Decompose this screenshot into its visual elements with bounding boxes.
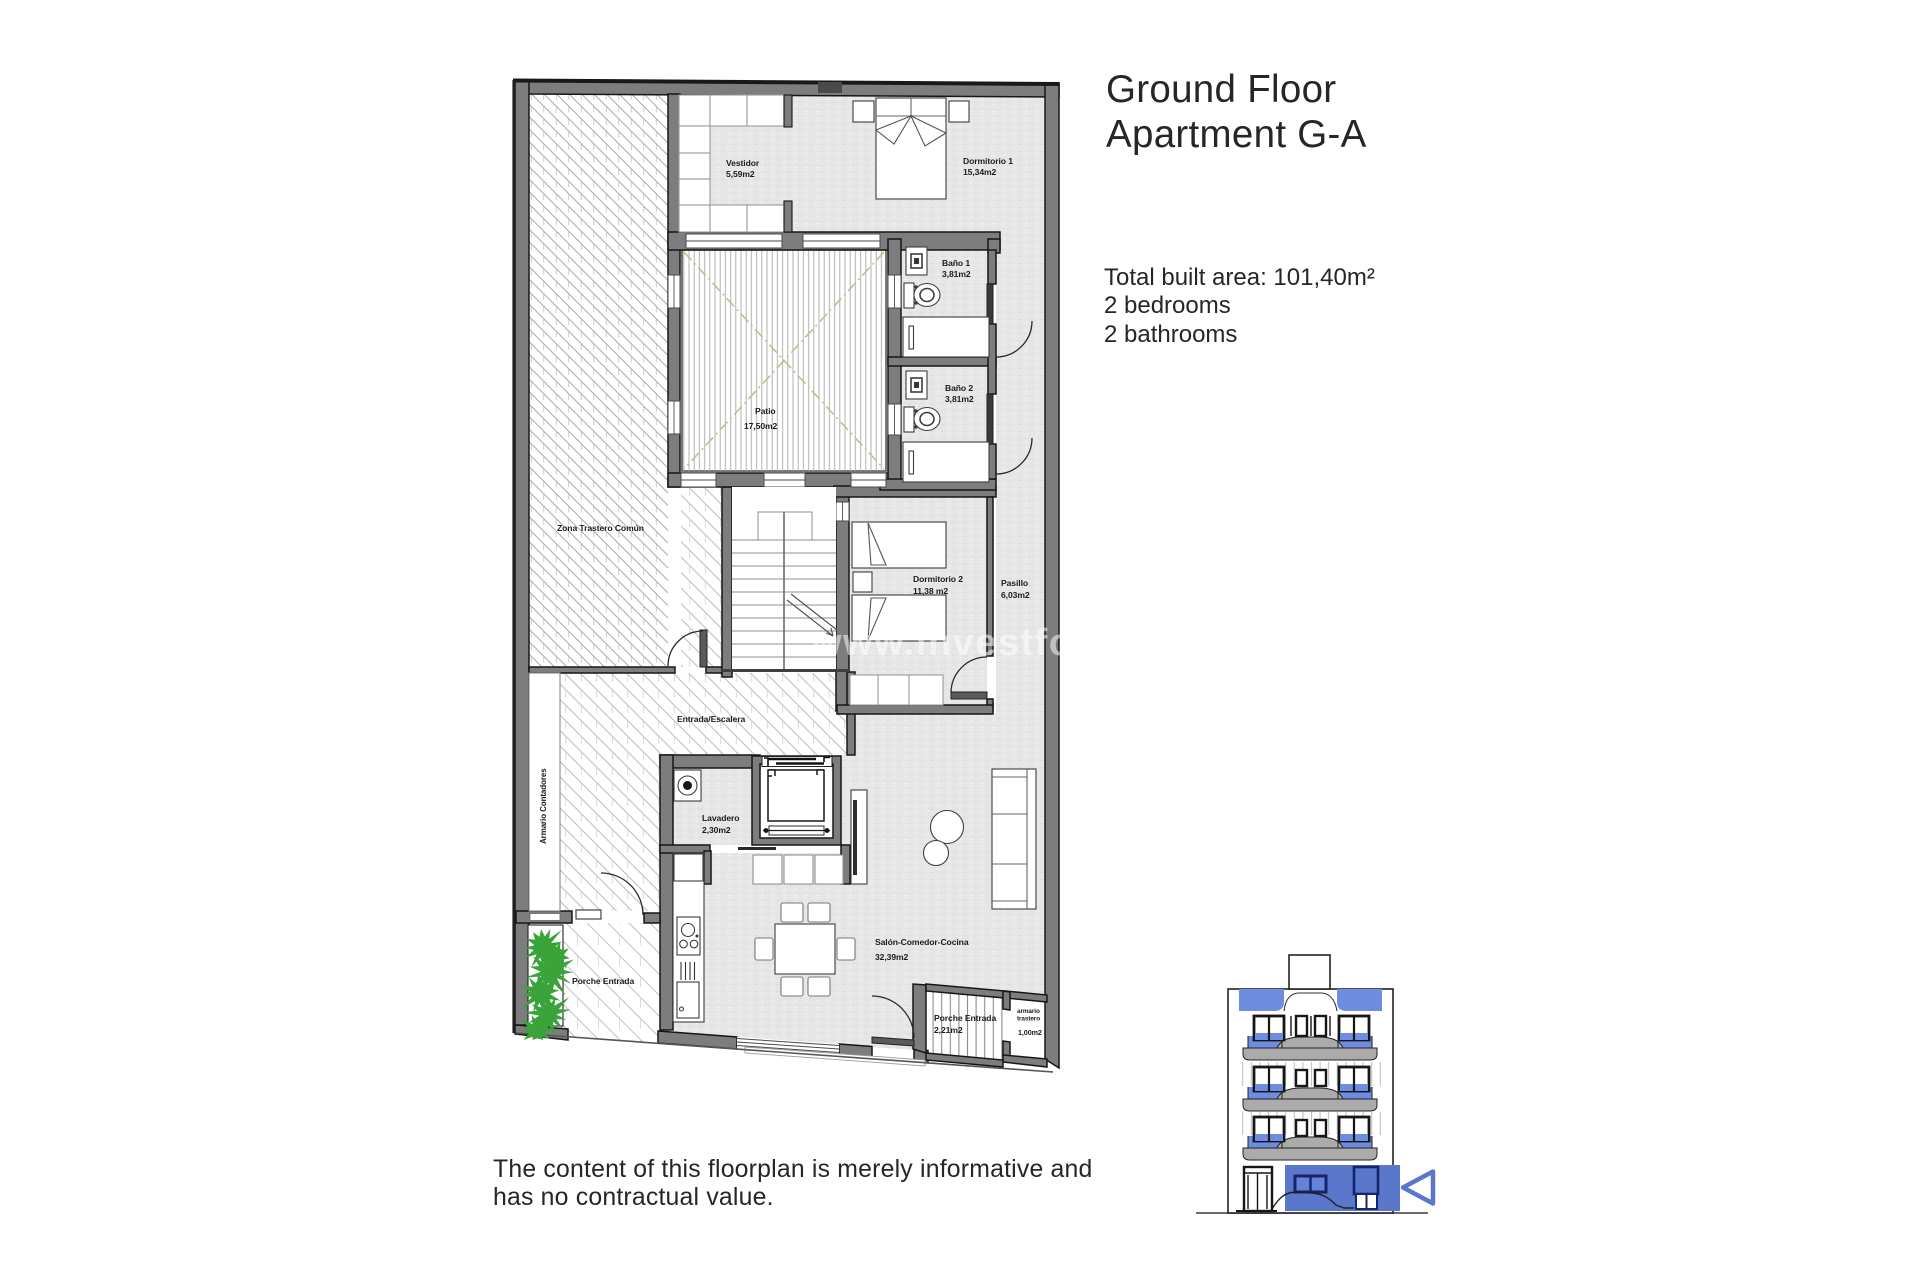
svg-text:11,38 m2: 11,38 m2 xyxy=(913,586,948,596)
svg-text:17,50m2: 17,50m2 xyxy=(744,421,778,431)
svg-text:5,59m2: 5,59m2 xyxy=(726,169,755,179)
svg-text:Vestidor: Vestidor xyxy=(726,158,760,168)
svg-text:32,39m2: 32,39m2 xyxy=(875,952,909,962)
svg-text:Pasillo: Pasillo xyxy=(1001,578,1028,588)
svg-text:Dormitorio 1: Dormitorio 1 xyxy=(963,156,1013,166)
svg-text:Dormitorio 2: Dormitorio 2 xyxy=(913,574,963,584)
svg-text:Armario Contadores: Armario Contadores xyxy=(539,768,548,844)
svg-text:6,03m2: 6,03m2 xyxy=(1001,590,1030,600)
svg-text:15,34m2: 15,34m2 xyxy=(963,167,997,177)
svg-text:www.investforhome.c: www.investforhome.c xyxy=(811,622,1232,664)
svg-text:Lavadero: Lavadero xyxy=(702,813,739,823)
svg-text:1,00m2: 1,00m2 xyxy=(1018,1028,1042,1037)
svg-text:Patio: Patio xyxy=(755,406,776,416)
svg-text:Baño 2: Baño 2 xyxy=(945,383,973,393)
svg-text:armario: armario xyxy=(1017,1008,1040,1015)
svg-text:2,21m2: 2,21m2 xyxy=(934,1025,963,1035)
svg-text:Baño 1: Baño 1 xyxy=(942,258,970,268)
svg-text:Salón-Comedor-Cocina: Salón-Comedor-Cocina xyxy=(875,937,969,947)
svg-text:Porche Entrada: Porche Entrada xyxy=(572,976,634,986)
svg-text:Porche Entrada: Porche Entrada xyxy=(934,1013,996,1023)
svg-text:3,81m2: 3,81m2 xyxy=(942,269,971,279)
svg-text:Zona Trastero Común: Zona Trastero Común xyxy=(557,523,644,533)
svg-text:trastero: trastero xyxy=(1017,1016,1040,1023)
svg-text:3,81m2: 3,81m2 xyxy=(945,394,974,404)
svg-text:Entrada/Escalera: Entrada/Escalera xyxy=(677,714,745,724)
svg-text:2,30m2: 2,30m2 xyxy=(702,825,731,835)
